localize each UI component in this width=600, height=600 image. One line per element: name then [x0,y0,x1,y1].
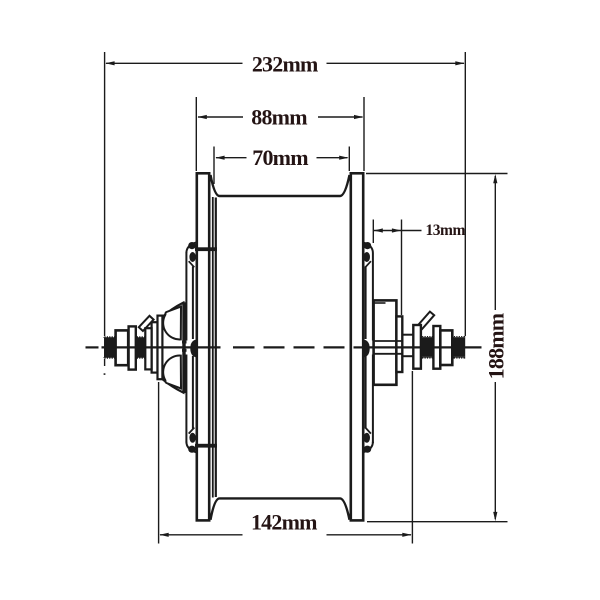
svg-text:188mm: 188mm [483,313,508,379]
svg-text:142mm: 142mm [251,510,317,535]
svg-text:13mm: 13mm [426,222,466,239]
svg-text:70mm: 70mm [252,145,308,170]
svg-text:88mm: 88mm [251,104,307,129]
svg-text:232mm: 232mm [252,51,318,76]
